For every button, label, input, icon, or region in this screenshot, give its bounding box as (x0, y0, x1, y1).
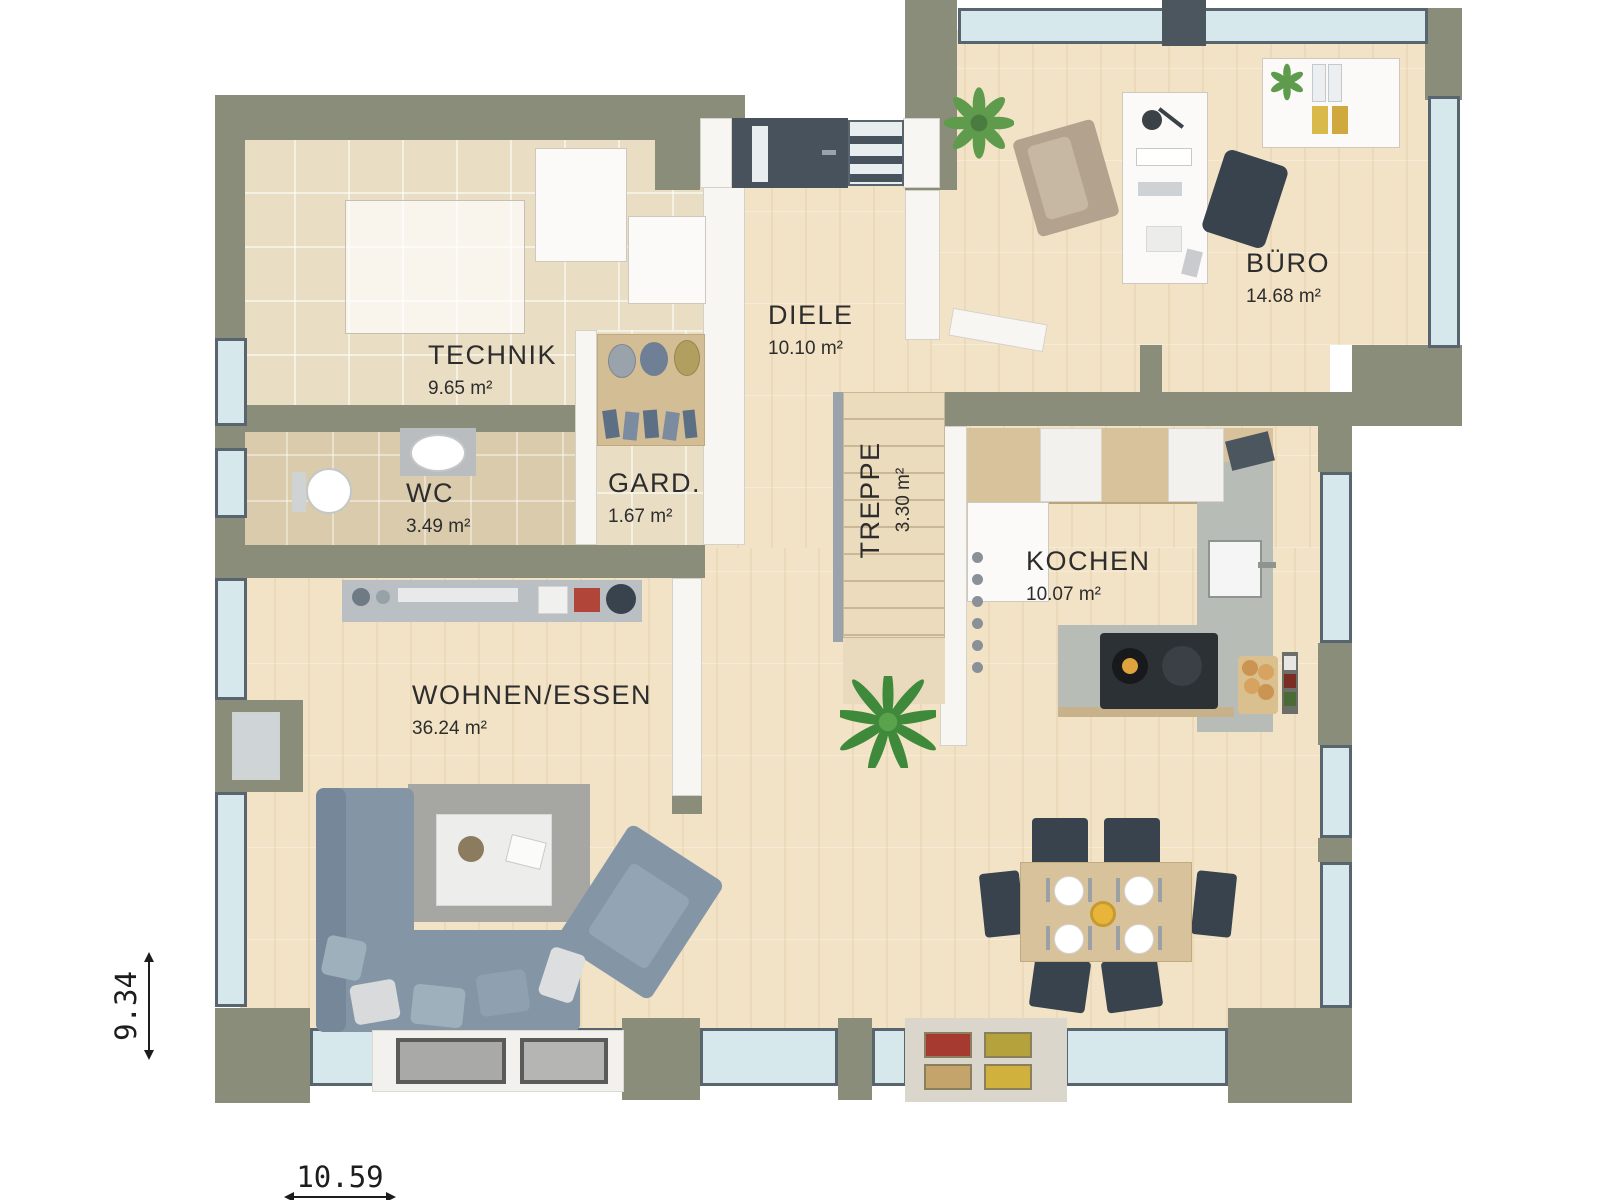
room-area: 1.67 m² (608, 506, 701, 528)
pan-food (1122, 658, 1138, 674)
room-name: WC (406, 478, 470, 509)
pillow (410, 983, 466, 1028)
dining-chair (1101, 954, 1164, 1013)
plate (1124, 924, 1154, 954)
room-name: GARD. (608, 468, 701, 499)
room-label-buero: BÜRO 14.68 m² (1246, 248, 1330, 308)
cutlery-icon (1158, 878, 1162, 902)
bag (608, 344, 636, 378)
window (872, 1028, 907, 1086)
dining-chair (1029, 954, 1092, 1013)
box (538, 586, 568, 614)
door-pier (903, 118, 940, 188)
wall-hook (972, 618, 983, 629)
papers (1146, 226, 1182, 252)
window (215, 448, 247, 518)
toilet (306, 468, 352, 514)
front-door-glass (752, 126, 768, 182)
picture-frame (232, 712, 280, 780)
room-label-technik: TECHNIK 9.65 m² (428, 340, 557, 400)
toilet-tank (292, 472, 306, 512)
room-label-kochen: KOCHEN 10.07 m² (1026, 546, 1151, 606)
room-area: 10.07 m² (1026, 584, 1151, 606)
folder (1312, 64, 1326, 102)
room-area: 3.30 m² (893, 468, 915, 532)
exterior-wall (1318, 643, 1352, 745)
sidelight-bar (850, 156, 902, 164)
dimension-height-line (148, 960, 150, 1052)
bread (1258, 664, 1274, 680)
washbasin (410, 434, 466, 472)
pillow (349, 978, 401, 1025)
room-label-gard: GARD. 1.67 m² (608, 468, 701, 528)
floor-plan: TECHNIK 9.65 m² WC 3.49 m² GARD. 1.67 m²… (0, 0, 1600, 1200)
window (1320, 472, 1352, 643)
plate (1124, 876, 1154, 906)
arrow-up-icon (144, 952, 154, 962)
room-name: KOCHEN (1026, 546, 1151, 577)
dining-chair (979, 870, 1025, 938)
book (1312, 106, 1328, 134)
room-area: 3.49 m² (406, 516, 470, 538)
cutlery-icon (1088, 926, 1092, 950)
kitchen-cabinet-white (1168, 428, 1224, 502)
framed-picture (520, 1038, 608, 1084)
vase (376, 590, 390, 604)
window (1065, 1028, 1228, 1086)
dining-chair (1191, 870, 1237, 938)
window-mullion (1162, 0, 1206, 46)
exterior-wall (1318, 838, 1352, 862)
kitchen-cabinet-white (1040, 428, 1102, 502)
interior-wall-wc-top (215, 405, 577, 432)
arrow-right-icon (386, 1192, 396, 1200)
pan (1162, 646, 1202, 686)
room-area: 10.10 m² (768, 338, 854, 360)
window (215, 338, 247, 426)
window (215, 792, 247, 1007)
interior-wall-kitchen-top (940, 392, 1462, 426)
exterior-wall (1228, 1008, 1352, 1103)
book (574, 588, 600, 612)
door-pier (700, 118, 732, 188)
exterior-wall (1140, 345, 1162, 392)
window (215, 578, 247, 700)
arrow-down-icon (144, 1050, 154, 1060)
spice-jar (1284, 656, 1296, 670)
framed-picture (396, 1038, 506, 1084)
tray (398, 588, 518, 602)
decor-twig (458, 836, 484, 862)
cutlery-icon (1088, 878, 1092, 902)
interior-wall (575, 330, 597, 545)
door-sidelight (848, 120, 904, 186)
plate (1054, 924, 1084, 954)
exterior-wall (622, 1018, 700, 1100)
exterior-wall (215, 1008, 310, 1103)
plant-icon (944, 86, 1014, 160)
exterior-wall (1425, 8, 1462, 100)
cutlery-icon (1046, 878, 1050, 902)
desk-lamp-icon (1142, 110, 1162, 130)
window (1320, 745, 1352, 838)
exterior-wall (215, 518, 245, 548)
spice-jar (1284, 692, 1296, 706)
room-name: DIELE (768, 300, 854, 331)
sidelight-bar (850, 174, 902, 182)
bread (1258, 684, 1274, 700)
room-area: 36.24 m² (412, 718, 652, 740)
sofa-backrest (316, 788, 346, 1032)
door-handle-icon (822, 150, 836, 155)
plate (1054, 876, 1084, 906)
hvac-unit (535, 148, 627, 262)
sink (1208, 540, 1262, 598)
cutlery-icon (1046, 926, 1050, 950)
dining-chair (1104, 818, 1160, 866)
room-label-wc: WC 3.49 m² (406, 478, 470, 538)
room-label-wohnen: WOHNEN/ESSEN 36.24 m² (412, 680, 652, 740)
sidelight-bar (850, 136, 902, 144)
pillow (320, 934, 367, 981)
window (1320, 862, 1352, 1008)
pillow (475, 969, 530, 1018)
keyboard (1138, 182, 1182, 196)
bowl (1090, 901, 1116, 927)
shoes (623, 411, 640, 440)
wall-hook (972, 662, 983, 673)
wall-hook (972, 596, 983, 607)
room-area: 9.65 m² (428, 378, 557, 400)
interior-wall-stub (672, 578, 702, 796)
wall-hook (972, 552, 983, 563)
room-name: TECHNIK (428, 340, 557, 371)
monitor (1136, 148, 1192, 166)
bag (640, 342, 668, 376)
room-name: TREPPE (855, 441, 886, 558)
cutlery-icon (1116, 878, 1120, 902)
room-label-diele: DIELE 10.10 m² (768, 300, 854, 360)
plant-icon (840, 676, 936, 768)
interior-wall (905, 190, 940, 340)
framed-picture (924, 1064, 972, 1090)
bag (674, 340, 700, 376)
shoes (643, 409, 659, 438)
framed-picture (984, 1032, 1032, 1058)
room-name: BÜRO (1246, 248, 1330, 279)
dimension-height-label: 9.34 (109, 961, 145, 1051)
dining-chair (1032, 818, 1088, 866)
cutlery-icon (1158, 926, 1162, 950)
interior-wall-stub-cap (672, 796, 702, 814)
room-area: 14.68 m² (1246, 286, 1330, 308)
framed-picture (984, 1064, 1032, 1090)
bread (1242, 660, 1258, 676)
faucet-icon (1258, 562, 1276, 568)
wall-hook (972, 640, 983, 651)
cutlery-icon (1116, 926, 1120, 950)
exterior-wall (215, 95, 245, 340)
wall-hook (972, 574, 983, 585)
dimension-width-label: 10.59 (292, 1160, 388, 1194)
hvac-unit (345, 200, 525, 334)
book (1332, 106, 1348, 134)
plant-icon (1268, 62, 1306, 102)
exterior-wall (1352, 345, 1462, 392)
bowl-dark (606, 584, 636, 614)
window-office-corner (1428, 96, 1460, 348)
interior-wall (703, 140, 745, 545)
room-label-treppe: TREPPE 3.30 m² (815, 415, 955, 585)
interior-wall-living-top (215, 545, 705, 578)
exterior-wall (838, 1018, 872, 1100)
window (700, 1028, 838, 1086)
exterior-wall (655, 95, 700, 190)
arrow-left-icon (284, 1192, 294, 1200)
spice-jar (1284, 674, 1296, 688)
vase (352, 588, 370, 606)
folder (1328, 64, 1342, 102)
dimension-width-line (292, 1196, 386, 1198)
room-name: WOHNEN/ESSEN (412, 680, 652, 711)
framed-picture (924, 1032, 972, 1058)
hvac-unit (628, 216, 706, 304)
exterior-wall (1318, 426, 1352, 472)
